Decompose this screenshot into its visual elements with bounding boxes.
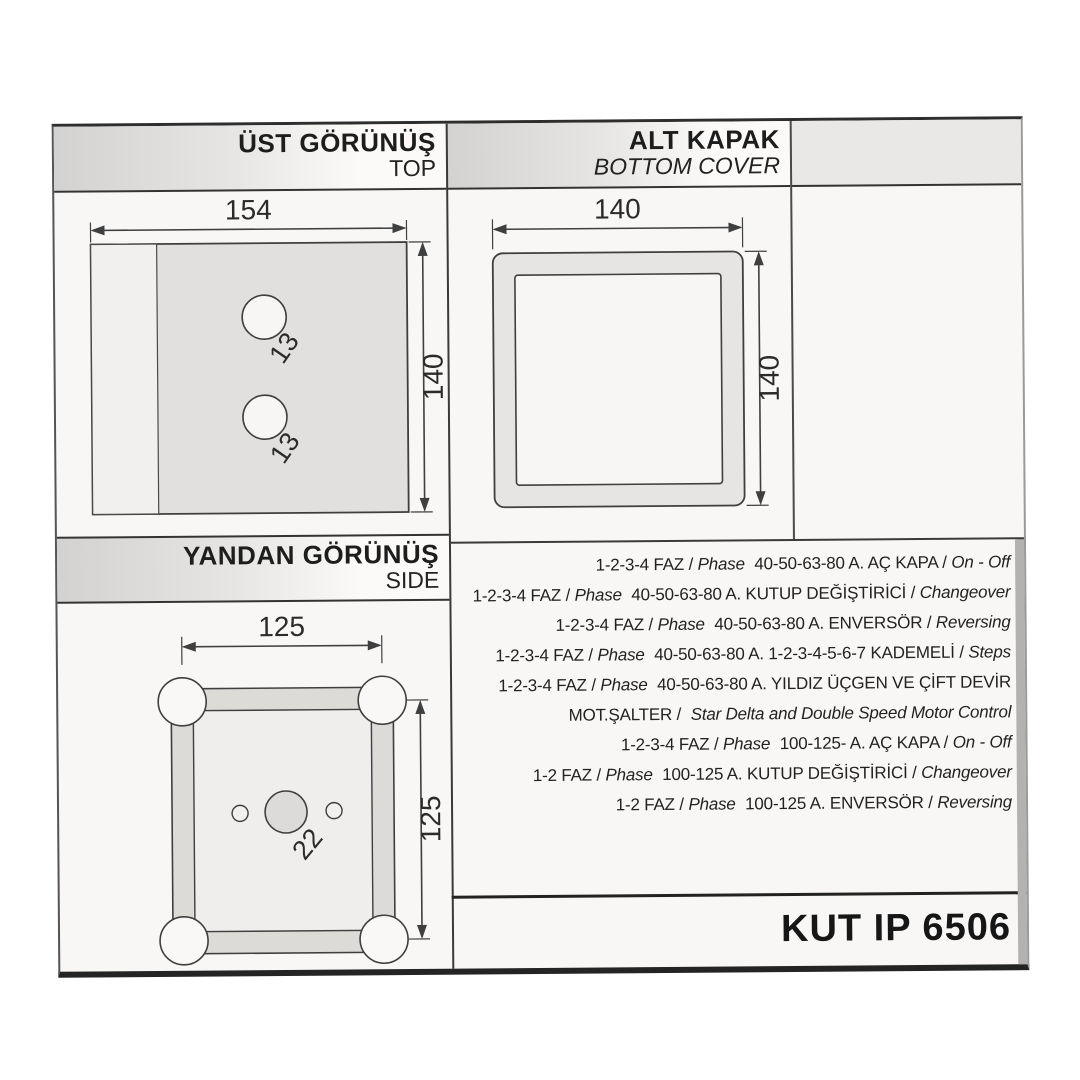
corner-boss <box>158 678 206 726</box>
spec-rating: 40-50-63-80 A. YILDIZ ÜÇGEN VE ÇİFT DEVİ… <box>657 672 1011 694</box>
arrowhead <box>728 222 742 232</box>
corner-boss <box>360 915 408 963</box>
spec-rating: 100-125 A. ENVERSÖR / <box>745 793 933 813</box>
arrowhead <box>182 642 196 652</box>
title-block: KUT IP 6506 <box>452 894 1028 969</box>
spec-rating: 100-125 A. KUTUP DEĞİŞTİRİCİ / <box>662 763 917 784</box>
bottom-cover-drawing: 140 140 <box>448 187 793 542</box>
section-header-side-view: YANDAN GÖRÜNÜŞ SIDE <box>57 534 450 604</box>
spec-phase: 1-2-3-4 FAZ / <box>472 586 570 606</box>
spec-function-en: Changeover <box>920 582 1011 602</box>
spec-phase: 1-2-3-4 FAZ / <box>621 735 719 755</box>
spec-function-en: On - Off <box>951 552 1010 571</box>
spec-line: 1-2-3-4 FAZ / Phase 40-50-63-80 A. 1-2-3… <box>450 637 1011 671</box>
spec-phase: 1-2 FAZ / <box>616 795 684 815</box>
top-view-drawing: 13 13 154 140 <box>54 190 449 537</box>
spec-line: 1-2-3-4 FAZ / Phase 40-50-63-80 A. ENVER… <box>450 607 1011 641</box>
arrowhead <box>392 223 406 233</box>
arrowhead <box>368 640 382 650</box>
section-header-top-view: ÜST GÖRÜNÜŞ TOP <box>54 124 447 193</box>
spec-function-en: On - Off <box>953 732 1012 751</box>
arrowhead <box>90 225 104 235</box>
spec-line: 1-2-3-4 FAZ / Phase 40-50-63-80 A. YILDI… <box>450 667 1011 701</box>
arrowhead <box>415 700 425 714</box>
spec-rating: 100-125- A. AÇ KAPA / <box>780 733 949 753</box>
spec-function-en: Changeover <box>921 762 1012 782</box>
spec-function-en: Reversing <box>936 612 1011 632</box>
section-title-english: TOP <box>54 156 436 184</box>
small-hole <box>232 805 248 821</box>
width-dimension-label: 154 <box>225 194 272 225</box>
cable-gland-hole <box>265 791 307 833</box>
dimension-line <box>93 228 405 230</box>
spec-phase: 1-2-3-4 FAZ / <box>595 555 693 575</box>
spec-phase: 1-2 FAZ / <box>533 766 601 786</box>
side-view-drawing: 22 125 125 <box>57 601 452 972</box>
section-title-turkish: ÜST GÖRÜNÜŞ <box>54 128 436 159</box>
arrowhead <box>418 242 428 256</box>
spec-list: 1-2-3-4 FAZ / Phase 40-50-63-80 A. AÇ KA… <box>449 539 1027 896</box>
spec-line: MOT.ŞALTER / Star Delta and Double Speed… <box>450 697 1011 731</box>
spec-line: 1-2 FAZ / Phase 100-125 A. ENVERSÖR / Re… <box>451 787 1012 821</box>
spec-phase-en: Phase <box>657 615 704 634</box>
section-header-bottom-cover: ALT KAPAK BOTTOM COVER <box>446 121 791 190</box>
dimension-line <box>184 645 380 647</box>
arrowhead <box>420 498 430 512</box>
spec-phase-en: Phase <box>723 734 770 753</box>
spec-phase-en: Phase <box>597 645 644 664</box>
spec-line: 1-2-3-4 FAZ / Phase 100-125- A. AÇ KAPA … <box>450 727 1011 761</box>
section-title-english: BOTTOM COVER <box>446 153 780 180</box>
dimension-line <box>495 227 741 229</box>
arrowhead <box>754 251 764 265</box>
spec-rating: 40-50-63-80 A. ENVERSÖR / <box>714 613 931 634</box>
corner-boss <box>358 676 406 724</box>
height-dimension-label: 140 <box>417 353 448 400</box>
arrowhead <box>417 925 427 939</box>
spec-function-en: Star Delta and Double Speed Motor Contro… <box>691 702 1012 724</box>
spec-phase-en: Phase <box>605 765 652 784</box>
spec-rating: 40-50-63-80 A. AÇ KAPA / <box>754 553 947 574</box>
spec-line: 1-2 FAZ / Phase 100-125 A. KUTUP DEĞİŞTİ… <box>451 757 1012 791</box>
photographed-datasheet: ÜST GÖRÜNÜŞ TOP ALT KAPAK BOTTOM COVER Y… <box>0 0 1080 1080</box>
spec-phase: MOT.ŞALTER / <box>569 705 682 725</box>
spec-phase: 1-2-3-4 FAZ / <box>498 676 596 696</box>
width-dimension-label: 125 <box>258 611 305 642</box>
arrowhead <box>756 491 766 505</box>
cover-inner <box>515 274 723 486</box>
spec-line: 1-2-3-4 FAZ / Phase 40-50-63-80 A. KUTUP… <box>449 577 1010 611</box>
section-title-turkish: YANDAN GÖRÜNÜŞ <box>57 540 439 571</box>
arrowhead <box>492 224 506 234</box>
datasheet-page: ÜST GÖRÜNÜŞ TOP ALT KAPAK BOTTOM COVER Y… <box>52 116 1030 978</box>
spec-phase-en: Phase <box>575 585 622 604</box>
spec-function-en: Steps <box>968 642 1011 661</box>
spec-line: 1-2-3-4 FAZ / Phase 40-50-63-80 A. AÇ KA… <box>449 547 1010 581</box>
spec-rating: 40-50-63-80 A. 1-2-3-4-5-6-7 KADEMELİ / <box>654 643 964 664</box>
spec-function-en: Reversing <box>937 792 1012 812</box>
section-title-english: SIDE <box>57 568 439 596</box>
product-code: KUT IP 6506 <box>781 906 1011 950</box>
spec-phase: 1-2-3-4 FAZ / <box>495 646 593 666</box>
spec-phase: 1-2-3-4 FAZ / <box>555 615 653 635</box>
small-hole <box>326 803 342 819</box>
height-dimension-label: 140 <box>753 355 784 402</box>
page-edge-shadow <box>1015 539 1027 964</box>
height-dimension-label: 125 <box>415 795 446 842</box>
corner-boss <box>160 917 208 965</box>
spec-rating: 40-50-63-80 A. KUTUP DEĞİŞTİRİCİ / <box>631 583 915 604</box>
section-title-turkish: ALT KAPAK <box>446 125 780 156</box>
spec-phase-en: Phase <box>600 675 647 694</box>
section-header-empty <box>790 119 1022 187</box>
spec-phase-en: Phase <box>688 794 735 813</box>
enclosure-top-flange <box>91 244 159 515</box>
spec-phase-en: Phase <box>698 554 745 573</box>
width-dimension-label: 140 <box>594 193 641 224</box>
